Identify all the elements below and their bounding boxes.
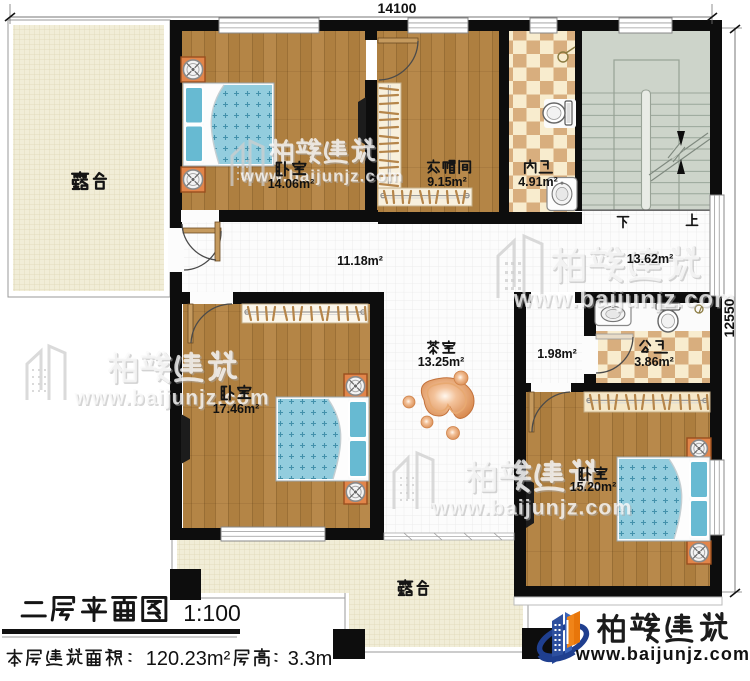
svg-text:3.3m: 3.3m bbox=[288, 648, 332, 670]
svg-text:14.06m²: 14.06m² bbox=[268, 177, 315, 191]
svg-text:13.62m²: 13.62m² bbox=[627, 252, 674, 266]
svg-text:15.20m²: 15.20m² bbox=[570, 480, 617, 494]
svg-text:17.46m²: 17.46m² bbox=[213, 402, 260, 416]
svg-text:120.23m²: 120.23m² bbox=[146, 648, 231, 670]
svg-text:3.86m²: 3.86m² bbox=[634, 355, 674, 369]
svg-text:www.baijunjz.com: www.baijunjz.com bbox=[240, 167, 404, 186]
svg-text:11.18m²: 11.18m² bbox=[337, 254, 383, 268]
svg-text:13.25m²: 13.25m² bbox=[418, 355, 465, 369]
svg-text:12550: 12550 bbox=[721, 298, 737, 337]
svg-text:14100: 14100 bbox=[378, 0, 417, 16]
svg-text:www.baijunjz.com: www.baijunjz.com bbox=[431, 495, 633, 519]
svg-text:9.15m²: 9.15m² bbox=[427, 175, 467, 189]
svg-text:1:100: 1:100 bbox=[183, 600, 241, 626]
svg-text:www.baijunjz.com: www.baijunjz.com bbox=[513, 286, 737, 313]
svg-text:1.98m²: 1.98m² bbox=[537, 347, 577, 361]
svg-text:4.91m²: 4.91m² bbox=[518, 175, 558, 189]
svg-text:www.baijunjz.com: www.baijunjz.com bbox=[575, 644, 750, 664]
